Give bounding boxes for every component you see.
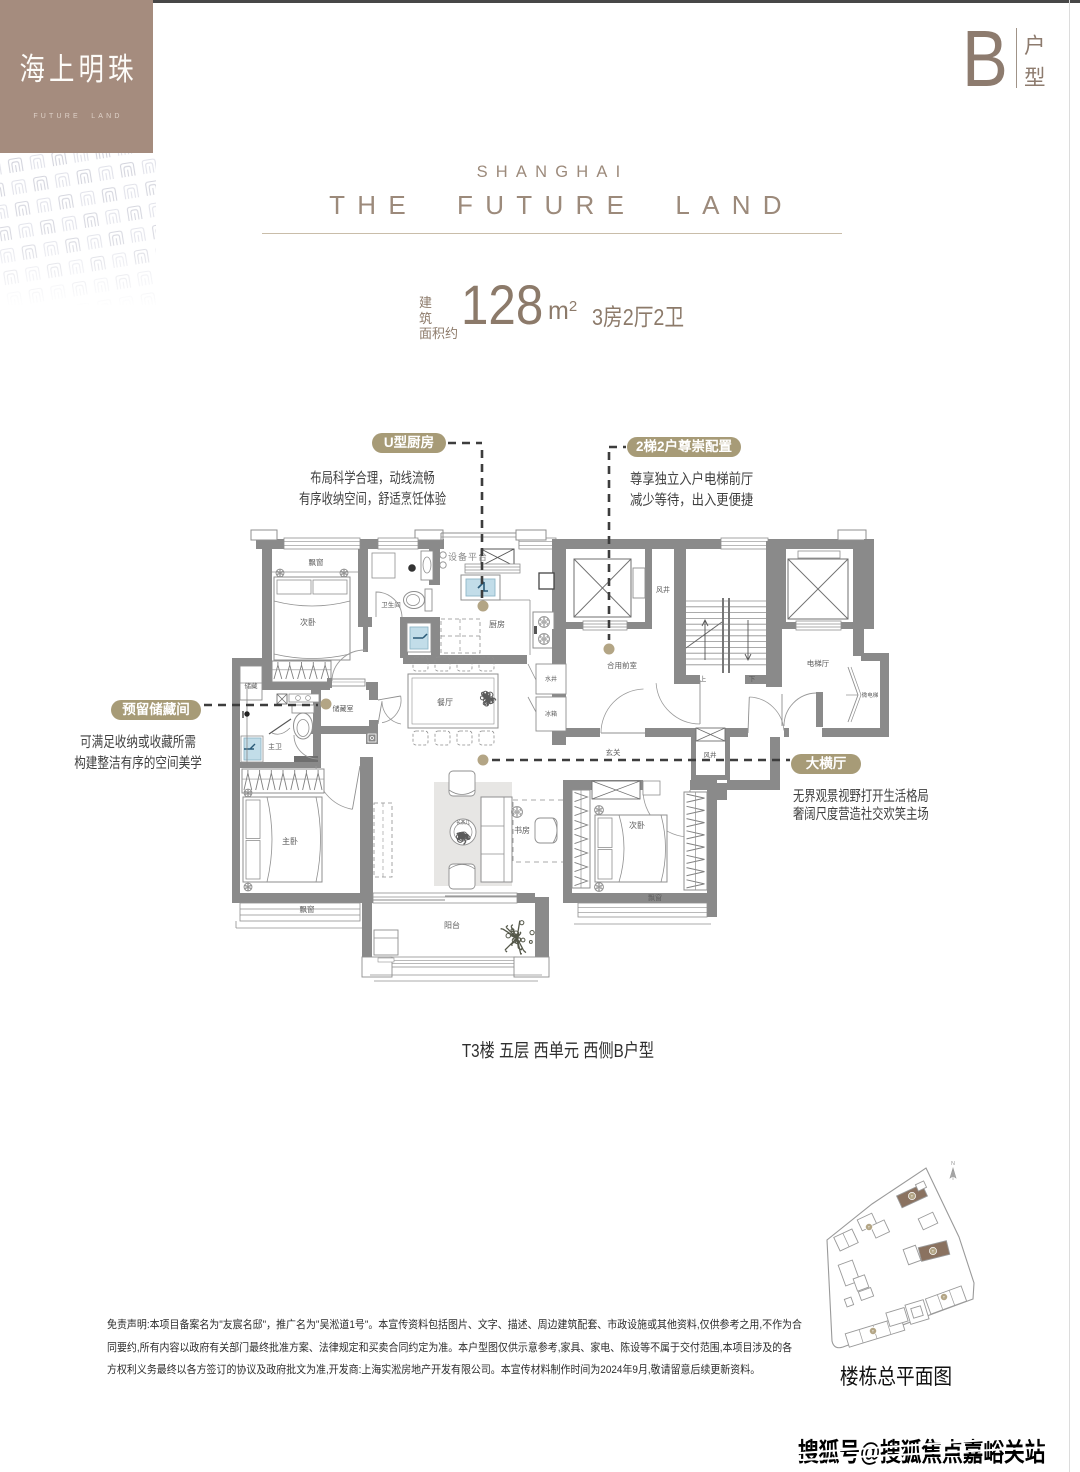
- svg-text:阳台: 阳台: [444, 920, 460, 930]
- svg-text:玄关: 玄关: [606, 747, 621, 757]
- svg-text:合用前室: 合用前室: [607, 660, 637, 670]
- svg-text:N: N: [951, 1161, 955, 1167]
- svg-text:储藏室: 储藏室: [333, 704, 354, 713]
- svg-text:下: 下: [749, 675, 756, 683]
- svg-text:水井: 水井: [545, 675, 557, 683]
- svg-text:冰箱: 冰箱: [545, 710, 557, 718]
- svg-text:主卧: 主卧: [282, 836, 298, 846]
- svg-text:主卫: 主卫: [268, 742, 282, 751]
- svg-text:书房: 书房: [514, 825, 530, 835]
- svg-text:飘窗: 飘窗: [300, 904, 315, 914]
- svg-text:飘窗: 飘窗: [648, 893, 662, 902]
- svg-text:次卧: 次卧: [629, 820, 645, 830]
- svg-text:风井: 风井: [704, 750, 718, 759]
- svg-text:微电梯: 微电梯: [862, 691, 879, 699]
- svg-text:飘窗: 飘窗: [309, 557, 324, 567]
- svg-text:电梯厅: 电梯厅: [807, 658, 830, 668]
- svg-text:上: 上: [700, 674, 707, 683]
- svg-text:次卧: 次卧: [300, 617, 316, 627]
- svg-text:风井: 风井: [656, 585, 670, 594]
- svg-text:长茶几: 长茶几: [456, 819, 470, 826]
- svg-text:厨房: 厨房: [489, 619, 505, 629]
- svg-text:储藏: 储藏: [245, 681, 259, 690]
- svg-text:餐厅: 餐厅: [437, 698, 453, 707]
